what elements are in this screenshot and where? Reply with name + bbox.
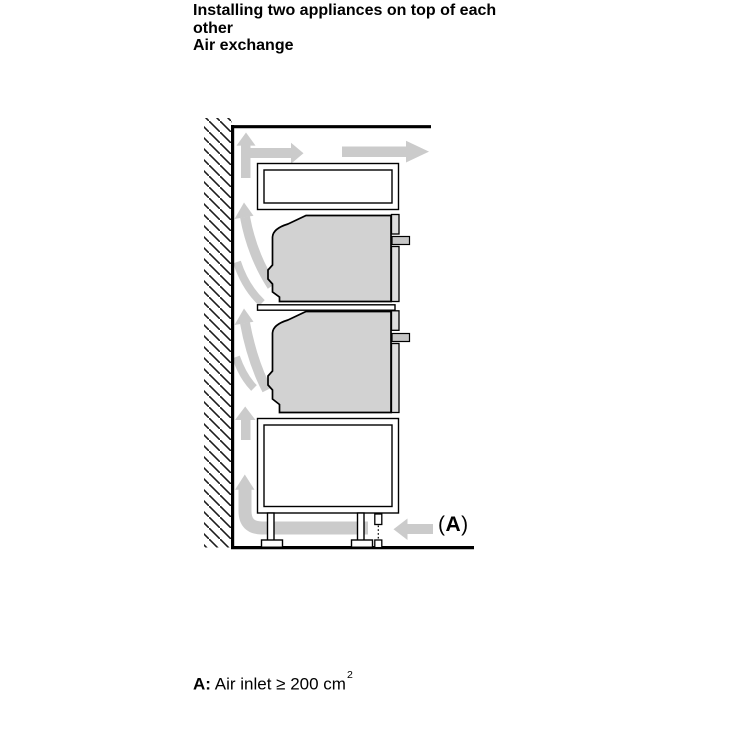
upper-oven-front-top — [392, 215, 400, 235]
upper-oven-body — [268, 216, 391, 302]
curved-airflow-upper — [235, 203, 273, 304]
label-paren-open: ( — [438, 513, 446, 536]
upper-oven-front-bottom — [392, 247, 400, 302]
curved-airflow-lower — [235, 309, 268, 391]
figure-caption: A: Air inlet ≥ 200 cm2 — [193, 670, 353, 695]
upper-oven-handle-knob — [392, 237, 410, 245]
ceiling-exhaust-arrow — [342, 141, 429, 163]
label-paren-close: ) — [461, 513, 469, 536]
right-foot-base — [352, 540, 373, 547]
caption-superscript: 2 — [347, 669, 353, 681]
lower-oven-front-top — [392, 311, 400, 331]
mid-shelf — [258, 305, 396, 310]
top-compartment — [258, 164, 399, 210]
left-foot-leg — [268, 513, 275, 541]
upper-oven — [268, 215, 410, 302]
base-compartment — [258, 419, 399, 514]
label-letter-a: A — [446, 513, 462, 536]
lower-oven — [268, 311, 410, 413]
air-inlet-label: (A) — [438, 512, 469, 538]
right-foot-leg — [358, 513, 365, 541]
lower-oven-handle-knob — [392, 334, 410, 342]
manual-page: Installing two appliances on top of each… — [0, 0, 750, 750]
lower-oven-body — [268, 312, 391, 413]
caption-key: A: — [193, 675, 211, 694]
plinth-air-inlet — [375, 514, 382, 548]
caption-text: Air inlet ≥ 200 cm — [211, 675, 346, 694]
air-inlet-arrow — [394, 519, 434, 541]
air-exchange-diagram — [0, 0, 750, 750]
wall-hatching — [204, 118, 232, 548]
wall-up-arrow — [235, 407, 256, 441]
lower-oven-front-bottom — [392, 344, 400, 413]
left-foot-base — [262, 540, 283, 547]
